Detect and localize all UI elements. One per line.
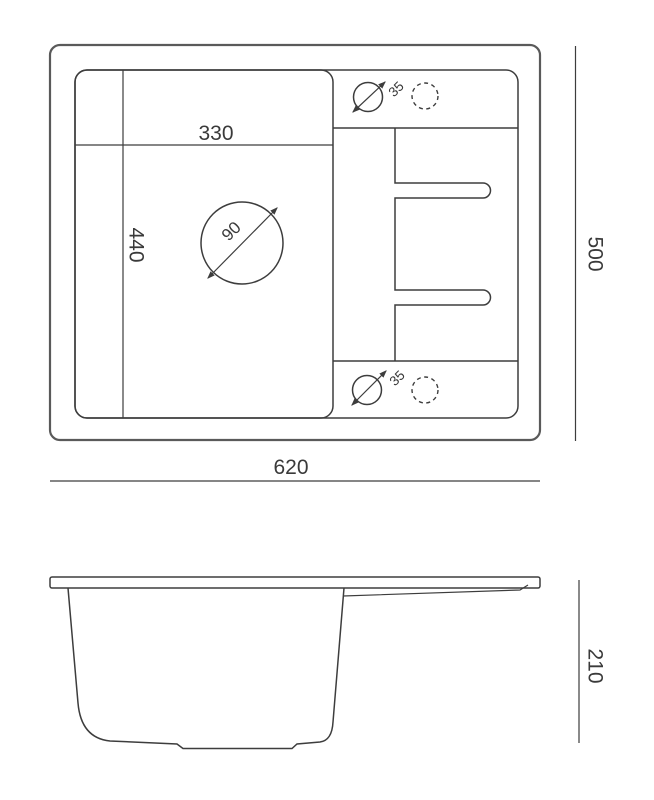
side-rim: [50, 577, 540, 588]
side-view: [50, 577, 579, 749]
sink-technical-drawing: 330 440 90 35 35 620 500 210: [0, 0, 654, 800]
tap-hole-bottom-alt-circle: [412, 377, 438, 403]
side-drainboard-underside: [343, 585, 528, 596]
drainboard-grooves: [395, 128, 491, 361]
tap-hole-top-alt-circle: [412, 83, 438, 109]
overall-width-label: 620: [273, 456, 308, 479]
tap-hole-bottom-diameter-label: 35: [387, 368, 408, 389]
drain-hole: [201, 202, 283, 284]
overall-depth-label: 500: [584, 236, 607, 271]
tap-hole-top-diameter-label: 35: [386, 79, 407, 100]
drain-diameter-line: [208, 208, 277, 278]
bowl-depth-label: 440: [125, 227, 148, 262]
side-height-label: 210: [584, 648, 607, 683]
drain-diameter-label: 90: [218, 218, 245, 245]
side-bowl-profile: [68, 588, 344, 749]
top-view: [50, 45, 576, 481]
bowl-width-label: 330: [198, 122, 233, 145]
dimension-labels: 330 440 90 35 35 620 500 210: [125, 79, 607, 684]
